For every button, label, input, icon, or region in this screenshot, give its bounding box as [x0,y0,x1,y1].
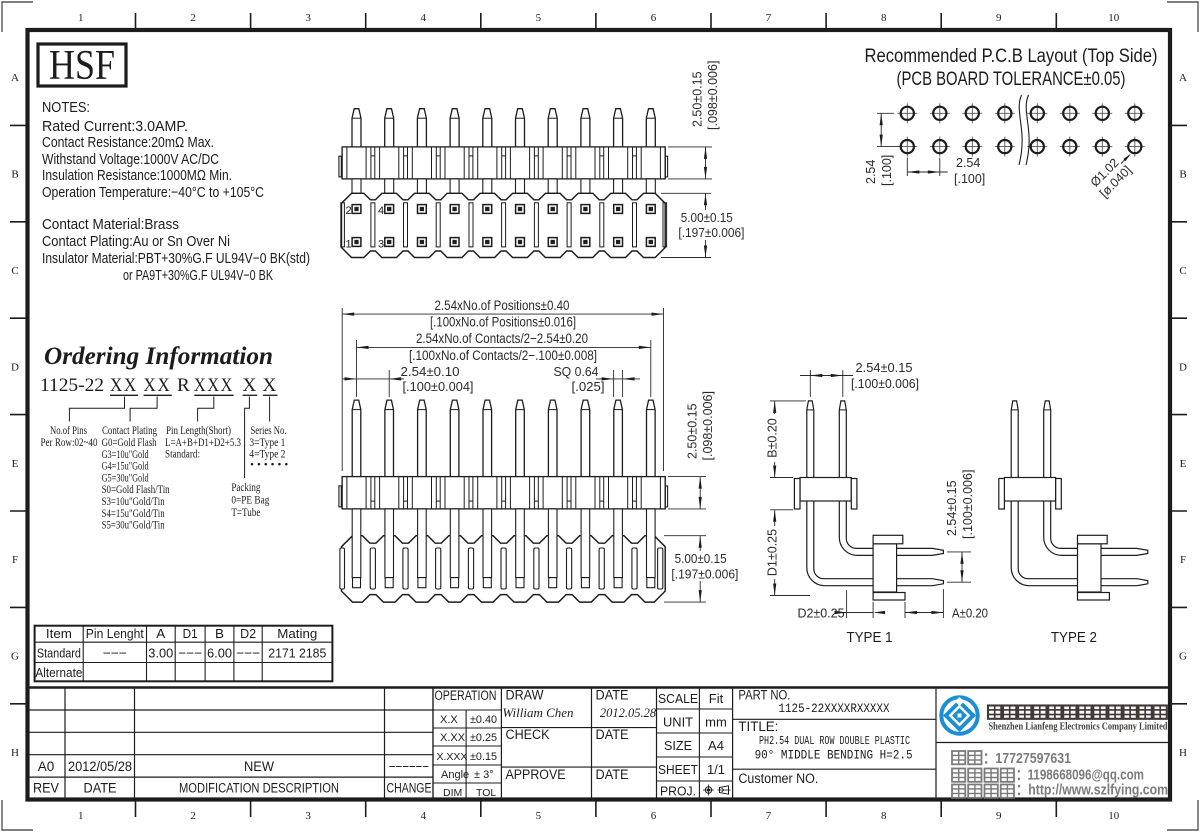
svg-text:D: D [1179,361,1187,373]
svg-text:Fit: Fit [709,691,724,706]
svg-text:SQ 0.64: SQ 0.64 [554,364,599,379]
svg-text:NOTES:: NOTES: [42,100,90,116]
svg-text:G: G [11,651,19,663]
svg-text:G: G [1179,651,1187,663]
svg-text:B±0.20: B±0.20 [766,418,780,458]
svg-text:1125-22: 1125-22 [40,375,104,396]
svg-text:4: 4 [378,205,384,217]
svg-text:2.54±0.15: 2.54±0.15 [856,361,913,375]
svg-text:10: 10 [1108,12,1120,24]
svg-text:X: X [263,375,277,396]
svg-text:A4: A4 [708,738,724,753]
svg-text:DATE: DATE [84,781,117,796]
svg-text:2.54xNo.of Contacts/2−2.54±0.2: 2.54xNo.of Contacts/2−2.54±0.20 [416,331,588,346]
svg-text:B: B [215,626,224,641]
svg-text:9: 9 [996,810,1002,822]
svg-text:(PCB BOARD TOLERANCE±0.05): (PCB BOARD TOLERANCE±0.05) [897,69,1126,90]
svg-text:2.54: 2.54 [864,160,878,184]
svg-text:±0.15: ±0.15 [470,751,497,763]
svg-text:E: E [12,458,19,470]
svg-text:8: 8 [881,12,887,24]
svg-text:T=Tube: T=Tube [231,505,260,519]
svg-text:Item: Item [46,626,72,641]
svg-text:F: F [1180,554,1186,566]
svg-text:A: A [11,72,19,84]
svg-text:XX: XX [144,375,172,396]
svg-text:[.100xNo.of Contacts/2−.100±0.: [.100xNo.of Contacts/2−.100±0.008] [409,348,597,363]
svg-text:D1: D1 [183,626,198,641]
svg-text:−−−: −−− [103,646,127,661]
svg-text:Customer NO.: Customer NO. [738,771,818,786]
svg-text:F: F [12,554,18,566]
svg-text:± 3°: ± 3° [474,769,494,781]
svg-text:B: B [11,169,18,181]
svg-text:A0: A0 [38,759,55,774]
svg-text:DIM: DIM [443,787,462,799]
svg-text:[.100]: [.100] [954,172,985,186]
svg-text:XXX: XXX [194,375,234,396]
svg-text:[.098±0.006]: [.098±0.006] [701,391,715,460]
svg-text:TYPE 1: TYPE 1 [847,629,893,646]
svg-text:DATE: DATE [596,688,629,703]
svg-text:XX: XX [110,375,138,396]
svg-text:UNIT: UNIT [663,715,693,730]
svg-text:Alternate: Alternate [35,665,82,680]
svg-text:X.XXX: X.XXX [437,751,468,763]
svg-text:−−−: −−− [178,646,202,661]
svg-text:HSF: HSF [49,43,115,89]
svg-text:DATE: DATE [596,727,629,742]
svg-text:TITLE:: TITLE: [738,719,778,734]
svg-text:9: 9 [996,12,1002,24]
svg-text:Standard: Standard [37,646,81,661]
svg-text:TOL: TOL [476,787,496,799]
svg-text:A: A [156,626,165,641]
svg-text:[.100±0.004]: [.100±0.004] [403,379,474,394]
svg-text:2.54±0.15: 2.54±0.15 [945,480,959,536]
svg-text:Withstand Voltage:1000V AC/DC: Withstand Voltage:1000V AC/DC [42,152,219,168]
svg-text:Rated Current:3.0AMP.: Rated Current:3.0AMP. [42,119,188,135]
svg-text:PROJ.: PROJ. [660,784,696,799]
svg-text:2.50±0.15: 2.50±0.15 [691,71,705,127]
svg-text:H: H [1179,747,1187,759]
svg-text:1125-22XXXXRXXXXX: 1125-22XXXXRXXXXX [779,701,890,716]
svg-text:4: 4 [420,12,426,24]
svg-text:Shenzhen Lianfeng Electronics: Shenzhen Lianfeng Electronics Company Li… [989,722,1168,733]
svg-text:A±0.20: A±0.20 [952,606,988,621]
svg-text:[.197±0.006]: [.197±0.006] [671,567,738,582]
svg-text:[.100±0.006]: [.100±0.006] [961,470,975,539]
svg-text:Insulation Resistance:1000MΩ M: Insulation Resistance:1000MΩ Min. [42,168,232,184]
svg-text:3: 3 [305,810,311,822]
svg-text:2: 2 [190,810,196,822]
svg-text:2.54±0.10: 2.54±0.10 [401,364,460,379]
svg-text:5: 5 [536,12,542,24]
svg-text:：http://www.szlfying.com: ：http://www.szlfying.com [1016,782,1168,799]
svg-text:7: 7 [766,12,772,24]
svg-text:E: E [1180,458,1187,470]
svg-text:2171 2185: 2171 2185 [268,646,326,661]
svg-text:A: A [1179,72,1187,84]
svg-text:2.54xNo.of Positions±0.40: 2.54xNo.of Positions±0.40 [435,298,570,313]
svg-text:2: 2 [190,12,196,24]
svg-text:10: 10 [1108,810,1120,822]
svg-text:H: H [11,747,19,759]
svg-text:−−−−−−: −−−−−− [389,759,429,774]
svg-text:[.100xNo.of Positions±0.016]: [.100xNo.of Positions±0.016] [430,315,576,330]
svg-text:X: X [243,375,257,396]
svg-text:2: 2 [346,205,352,217]
svg-text:8: 8 [881,810,887,822]
svg-text:D1±0.25: D1±0.25 [766,529,780,576]
svg-text:DRAW: DRAW [506,688,544,703]
svg-text:Pin Lenght: Pin Lenght [86,626,144,641]
svg-text:[.100±0.006]: [.100±0.006] [851,377,919,391]
svg-text:······: ······ [249,456,290,473]
svg-text:MODIFICATION DESCRIPTION: MODIFICATION DESCRIPTION [179,781,339,796]
svg-text:[.098±0.006]: [.098±0.006] [706,61,720,130]
svg-text:2012.05.28: 2012.05.28 [600,706,657,720]
svg-text:SCALE: SCALE [658,691,698,706]
svg-text:APPROVE: APPROVE [506,767,566,782]
svg-text:PH2.54 DUAL ROW DOUBLE PLASTIC: PH2.54 DUAL ROW DOUBLE PLASTIC [759,734,910,748]
svg-text:S5=30u"Gold/Tin: S5=30u"Gold/Tin [102,518,165,532]
svg-text:CHECK: CHECK [506,727,550,742]
svg-text:D: D [11,361,19,373]
svg-text:B: B [1179,169,1186,181]
svg-text:1: 1 [78,12,84,24]
svg-text:4: 4 [420,810,426,822]
svg-text:Angle: Angle [441,769,469,781]
svg-text:6: 6 [651,12,657,24]
svg-text:Contact Material:Brass: Contact Material:Brass [42,217,179,233]
svg-text:3.00: 3.00 [148,646,173,661]
svg-text:±0.40: ±0.40 [470,714,497,726]
svg-text:OPERATION: OPERATION [435,688,497,703]
svg-text:NEW: NEW [244,759,274,774]
svg-text:[.100]: [.100] [880,155,894,186]
svg-text:R: R [177,375,190,396]
svg-text:5.00±0.15: 5.00±0.15 [675,551,727,566]
svg-text:1: 1 [78,810,84,822]
svg-text:5: 5 [536,810,542,822]
svg-text:6: 6 [651,810,657,822]
svg-text:Contact Resistance:20mΩ Max.: Contact Resistance:20mΩ Max. [42,135,214,151]
svg-text:D2: D2 [240,626,256,641]
svg-text:Contact Plating:Au or Sn Over: Contact Plating:Au or Sn Over Ni [42,234,230,250]
svg-text:3: 3 [378,239,384,251]
svg-text:±0.25: ±0.25 [470,732,497,744]
svg-text:7: 7 [766,810,772,822]
svg-text:X.X: X.X [440,714,458,726]
svg-text:William Chen: William Chen [502,705,573,720]
svg-text:or PA9T+30%G.F UL94V−0 BK: or PA9T+30%G.F UL94V−0 BK [123,268,273,284]
svg-text:REV: REV [33,781,59,796]
svg-text:2012/05/28: 2012/05/28 [68,759,132,774]
svg-text:TYPE 2: TYPE 2 [1051,629,1097,646]
svg-text:2.50±0.15: 2.50±0.15 [686,403,700,459]
svg-text:1: 1 [346,239,352,251]
svg-text:：17727597631: ：17727597631 [983,750,1071,767]
svg-text:Insulator Material:PBT+30%G.F: Insulator Material:PBT+30%G.F UL94V−0 BK… [42,251,310,267]
svg-text:Ordering Information: Ordering Information [44,343,273,370]
svg-text:1/1: 1/1 [707,762,725,777]
svg-text:[.197±0.006]: [.197±0.006] [678,225,744,240]
svg-text:6.00: 6.00 [207,646,232,661]
svg-text:90° MIDDLE BENDING H=2.5: 90° MIDDLE BENDING H=2.5 [755,749,913,763]
svg-text:Standard:: Standard: [165,447,200,461]
svg-text:SIZE: SIZE [664,738,692,753]
svg-text:2.54: 2.54 [956,156,980,170]
svg-text:X.XX: X.XX [440,732,466,744]
svg-text:mm: mm [705,715,727,730]
svg-text:Operation Temperature:−40°C to: Operation Temperature:−40°C to +105°C [42,185,264,201]
svg-text:C: C [1179,265,1186,277]
svg-text:Mating: Mating [277,626,317,641]
svg-text:3: 3 [305,12,311,24]
svg-text:C: C [11,265,18,277]
svg-text:CHANGE: CHANGE [387,781,432,796]
svg-text:−−−: −−− [236,646,260,661]
svg-text:[.025]: [.025] [572,379,605,394]
svg-text:Per Row:02~40: Per Row:02~40 [41,435,98,449]
svg-text:5.00±0.15: 5.00±0.15 [681,210,733,225]
svg-text:SHEET: SHEET [658,762,698,777]
svg-text:Recommended P.C.B Layout (Top: Recommended P.C.B Layout (Top Side) [865,46,1158,67]
svg-text:DATE: DATE [596,767,629,782]
